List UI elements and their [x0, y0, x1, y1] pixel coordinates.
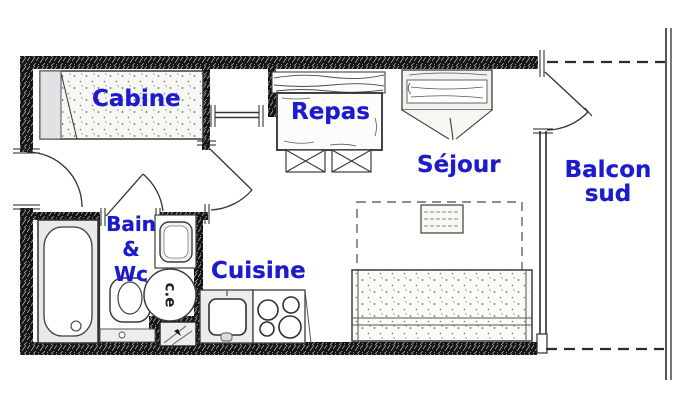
hall-door — [210, 149, 252, 210]
room-label-cuisine: Cuisine — [211, 259, 306, 283]
wardrobe-fold — [402, 110, 492, 139]
chair-2 — [332, 150, 371, 172]
sejour-convertible-bed — [357, 202, 522, 270]
technical-duct — [160, 322, 196, 346]
sejour-wardrobe — [402, 70, 492, 140]
kitchen-sink-drain — [221, 333, 232, 341]
burner-1 — [258, 300, 278, 320]
jamb-hall-door — [197, 141, 216, 224]
chair-1 — [286, 150, 325, 172]
burner-4 — [279, 316, 301, 338]
counter-end — [305, 290, 311, 343]
toilet-shelf — [100, 329, 155, 342]
balcon-line-2: sud — [552, 182, 664, 206]
jamb-entry-door — [13, 149, 40, 209]
bathtub — [38, 220, 99, 343]
jamb-niche-door — [211, 105, 263, 127]
wall-top — [20, 56, 538, 69]
burner-2 — [283, 297, 299, 313]
repas-bench — [272, 72, 385, 93]
wall-end-post — [537, 334, 547, 353]
entry-door-swing — [27, 152, 82, 207]
room-label-cabine: Cabine — [92, 87, 181, 111]
room-label-bain-wc: Bain & Wc — [100, 212, 162, 287]
bain-line-1: Bain — [100, 212, 162, 237]
sejour-window-wall — [537, 131, 547, 353]
room-label-balcon: Balcon sud — [552, 158, 664, 206]
kitchen-sink-cabinet — [200, 290, 253, 343]
kitchen-stove — [253, 290, 311, 343]
sejour-low-table — [421, 205, 463, 233]
wall-bottom — [20, 342, 537, 355]
room-label-sejour: Séjour — [417, 153, 501, 177]
bathtub-drain — [71, 321, 81, 331]
room-label-repas: Repas — [291, 100, 370, 124]
bath-door — [106, 174, 163, 216]
wall-left-upper — [20, 56, 33, 152]
wall-left-lower — [20, 208, 33, 355]
floor-plan-drawing: c.e — [0, 0, 700, 416]
bain-line-3: Wc — [100, 262, 162, 287]
balcony-door — [545, 72, 592, 130]
water-heater-label: c.e — [162, 283, 180, 308]
burner-3 — [260, 322, 274, 336]
floor-plan: c.e Cabine Repas Séjour Balcon sud Bain … — [0, 0, 700, 416]
wall-bath-top-left — [28, 212, 100, 220]
bain-line-2: & — [100, 237, 162, 262]
sejour-sofa — [352, 270, 532, 341]
repas-chairs — [286, 150, 371, 172]
balcon-line-1: Balcon — [552, 158, 664, 182]
niche-sliding-door — [215, 113, 259, 118]
